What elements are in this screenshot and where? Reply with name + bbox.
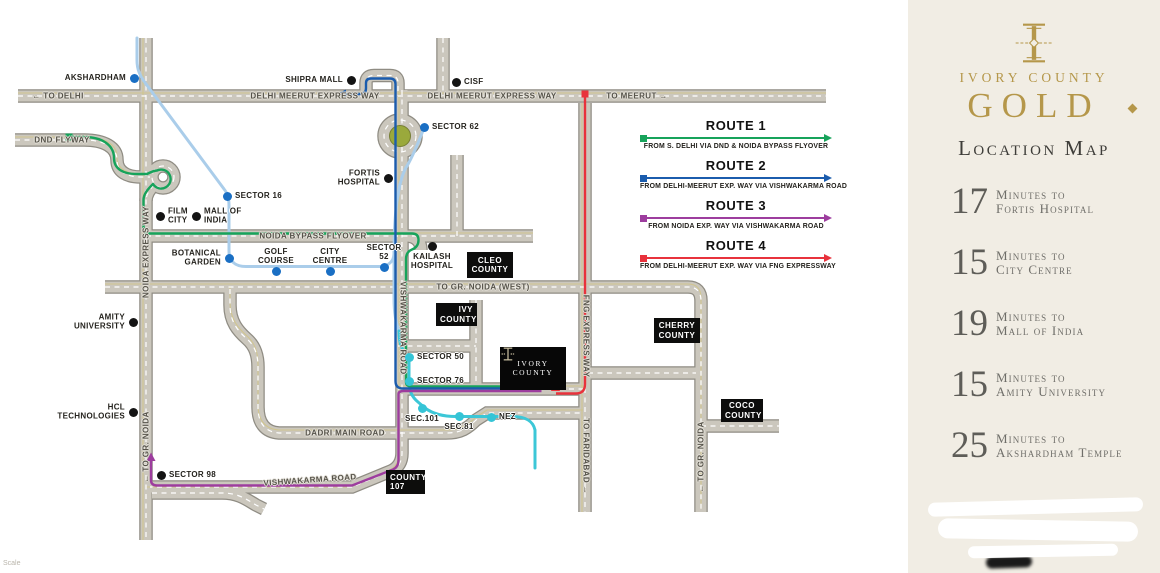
travel-time-text: Minutes toAkshardham Temple <box>996 426 1123 460</box>
brand-logo-icon <box>1012 18 1056 68</box>
community-box: CHERRYCOUNTY <box>654 318 700 343</box>
section-title: Location Map <box>908 136 1160 161</box>
travel-time-text: Minutes toFortis Hospital <box>996 182 1094 216</box>
location-map-page: ← TO DELHIDELHI MEERUT EXPRESS WAYDELHI … <box>0 0 1160 573</box>
legend-arrow-icon <box>824 214 832 222</box>
travel-time-text: Minutes toCity Centre <box>996 243 1073 277</box>
brand-wordmark: GOLD <box>908 86 1160 126</box>
legend-route-desc: FROM S. DELHI VIA DND & NOIDA BYPASS FLY… <box>640 143 832 151</box>
travel-time-item: 19Minutes toMall of India <box>944 304 1152 344</box>
travel-time-item: 25Minutes toAkshardham Temple <box>944 426 1152 466</box>
community-box: CLEOCOUNTY <box>467 252 513 278</box>
map-canvas: ← TO DELHIDELHI MEERUT EXPRESS WAYDELHI … <box>0 0 908 573</box>
legend-arrow-icon <box>824 174 832 182</box>
travel-time-line2: City Centre <box>996 263 1073 277</box>
legend-route-line <box>640 214 832 222</box>
erased-smudge <box>928 497 1143 517</box>
site-name-line2: COUNTY <box>513 369 554 378</box>
legend-square-icon <box>640 135 647 142</box>
legend-route-name: ROUTE 2 <box>640 159 832 173</box>
travel-time-line2: Amity University <box>996 385 1106 399</box>
travel-time-text: Minutes toMall of India <box>996 304 1084 338</box>
brand-wordmark-text: GOLD <box>967 86 1100 125</box>
erased-smudge <box>968 544 1118 559</box>
legend-square-icon <box>640 175 647 182</box>
travel-time-minutes: 25 <box>944 426 988 466</box>
legend-route-line <box>640 174 832 182</box>
erased-smudge <box>938 518 1138 541</box>
legend-square-icon <box>640 255 647 262</box>
community-layer: CLEOCOUNTYIVYCOUNTYCHERRYCOUNTYCOCOCOUNT… <box>0 0 908 573</box>
community-box: IVYCOUNTY <box>436 303 477 326</box>
travel-time-minutes: 15 <box>944 365 988 405</box>
travel-time-line1: Minutes to <box>996 432 1123 446</box>
community-box: COUNTY107 <box>386 470 425 494</box>
sidebar: IVORY COUNTY GOLD Location Map 17Minutes… <box>908 0 1160 573</box>
legend-line <box>647 177 824 179</box>
legend-line <box>647 257 824 259</box>
travel-time-item: 15Minutes toCity Centre <box>944 243 1152 283</box>
legend-route: ROUTE 2FROM DELHI-MEERUT EXP. WAY VIA VI… <box>640 159 832 191</box>
legend-route: ROUTE 1FROM S. DELHI VIA DND & NOIDA BYP… <box>640 119 832 151</box>
legend-route-name: ROUTE 3 <box>640 199 832 213</box>
legend-route-desc: FROM DELHI-MEERUT EXP. WAY VIA FNG EXPRE… <box>640 263 832 271</box>
community-box: COCOCOUNTY <box>721 399 763 422</box>
scale-note: Scale <box>3 560 21 567</box>
legend-route: ROUTE 4FROM DELHI-MEERUT EXP. WAY VIA FN… <box>640 239 832 271</box>
legend-route-desc: FROM NOIDA EXP. WAY VIA VISHWAKARMA ROAD <box>640 223 832 231</box>
travel-time-item: 17Minutes toFortis Hospital <box>944 182 1152 222</box>
travel-time-line2: Fortis Hospital <box>996 202 1094 216</box>
legend-route-name: ROUTE 1 <box>640 119 832 133</box>
route-legend: ROUTE 1FROM S. DELHI VIA DND & NOIDA BYP… <box>640 119 832 279</box>
travel-time-text: Minutes toAmity University <box>996 365 1106 399</box>
legend-arrow-icon <box>824 254 832 262</box>
travel-time-line1: Minutes to <box>996 371 1106 385</box>
diamond-icon <box>1128 104 1138 114</box>
travel-time-line1: Minutes to <box>996 310 1084 324</box>
travel-time-minutes: 19 <box>944 304 988 344</box>
travel-time-line2: Mall of India <box>996 324 1084 338</box>
travel-time-minutes: 15 <box>944 243 988 283</box>
legend-line <box>647 137 824 139</box>
legend-square-icon <box>640 215 647 222</box>
legend-route-name: ROUTE 4 <box>640 239 832 253</box>
travel-time-item: 15Minutes toAmity University <box>944 365 1152 405</box>
legend-route-line <box>640 254 832 262</box>
legend-route: ROUTE 3FROM NOIDA EXP. WAY VIA VISHWAKAR… <box>640 199 832 231</box>
travel-time-line1: Minutes to <box>996 188 1094 202</box>
brand-name: IVORY COUNTY <box>908 70 1160 86</box>
travel-times-list: 17Minutes toFortis Hospital15Minutes toC… <box>944 182 1152 487</box>
legend-route-desc: FROM DELHI-MEERUT EXP. WAY VIA VISHWAKAR… <box>640 183 832 191</box>
travel-time-line2: Akshardham Temple <box>996 446 1123 460</box>
travel-time-line1: Minutes to <box>996 249 1073 263</box>
travel-time-minutes: 17 <box>944 182 988 222</box>
legend-route-line <box>640 134 832 142</box>
legend-arrow-icon <box>824 134 832 142</box>
site-marker-ivory-county: IVORY COUNTY <box>500 347 566 390</box>
legend-line <box>647 217 824 219</box>
site-logo-icon <box>500 347 516 361</box>
